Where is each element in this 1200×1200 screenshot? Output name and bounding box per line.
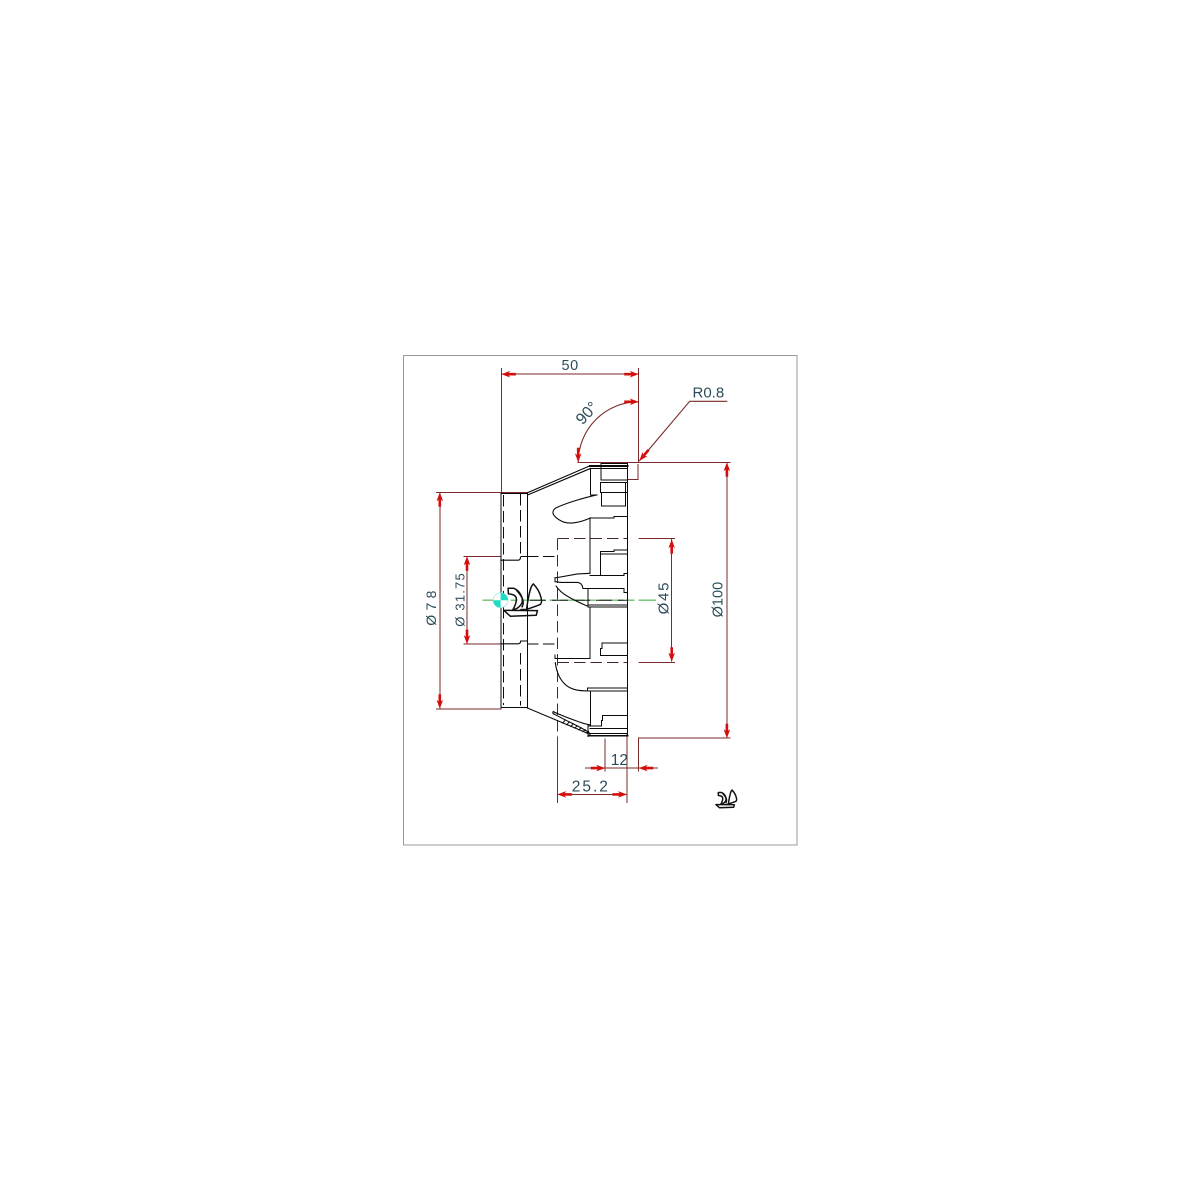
svg-text:R0.8: R0.8 — [693, 384, 725, 401]
svg-text:Ø78: Ø78 — [423, 586, 439, 625]
svg-text:12: 12 — [611, 752, 628, 769]
svg-text:50: 50 — [562, 358, 579, 374]
svg-text:Ø 31.75: Ø 31.75 — [453, 572, 468, 627]
svg-text:25.2: 25.2 — [572, 778, 610, 795]
svg-text:Ø45: Ø45 — [656, 581, 673, 614]
svg-text:Ø100: Ø100 — [710, 582, 726, 617]
